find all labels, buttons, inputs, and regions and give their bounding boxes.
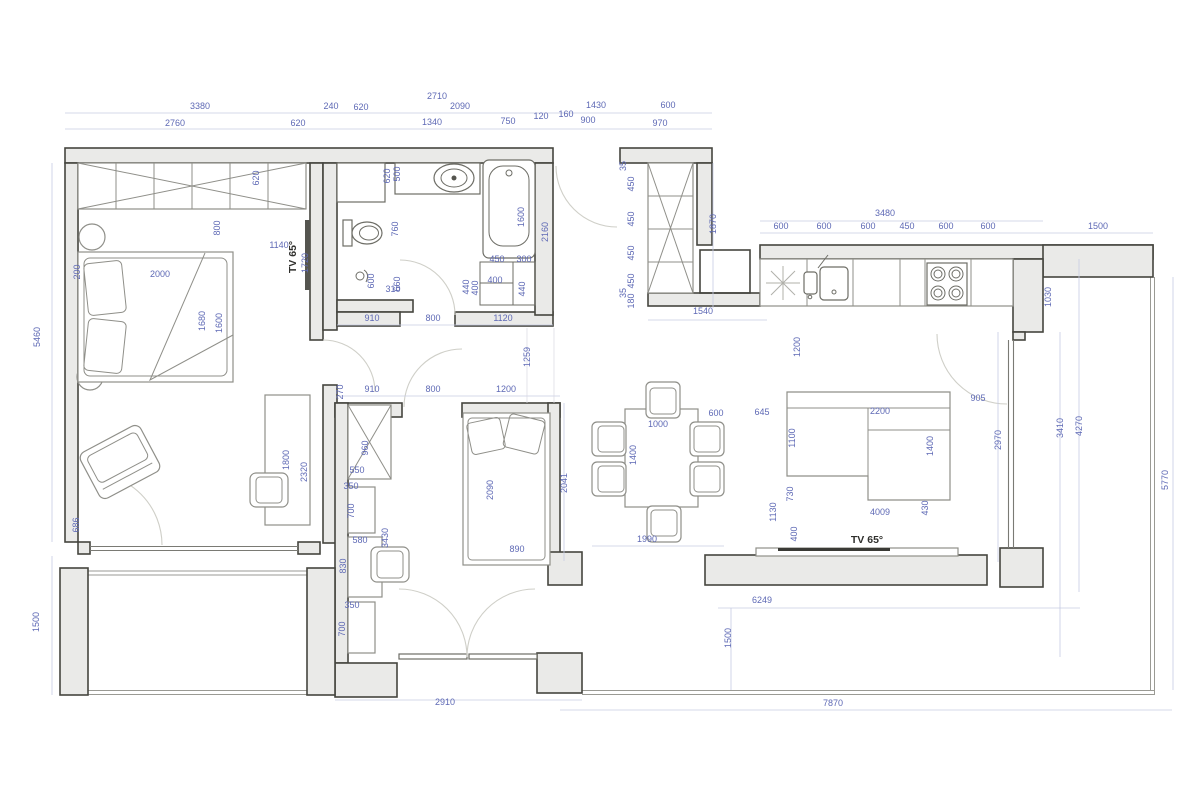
toilet <box>343 220 382 246</box>
dimension-label: 400 <box>789 526 799 541</box>
dimension-label: 2710 <box>427 91 447 101</box>
dimension-label: 600 <box>366 273 376 288</box>
french-door-leaf <box>399 654 467 659</box>
dimension-label: 2160 <box>540 222 550 242</box>
dimension-label: 1340 <box>422 117 442 127</box>
dimension-label: 450 <box>626 211 636 226</box>
dimension-label: 830 <box>338 558 348 573</box>
tv-label: TV 65° <box>287 241 299 273</box>
dimension-label: 300 <box>516 254 531 264</box>
dimension-label: 800 <box>425 313 440 323</box>
dimension-label: 400 <box>487 275 502 285</box>
dimension-label: 550 <box>349 465 364 475</box>
bedroom-desk-chair <box>250 473 288 507</box>
dimension-label: 350 <box>343 481 358 491</box>
middle-room-door-arc <box>404 349 462 407</box>
entry-closet <box>648 163 693 293</box>
dimension-label: 1400 <box>925 436 935 456</box>
entry-door-arc <box>556 166 617 227</box>
dimension-label: 450 <box>626 176 636 191</box>
dimension-label: 1130 <box>768 502 778 521</box>
tv-console <box>756 548 958 556</box>
dimension-label: 1990 <box>637 534 657 544</box>
dimension-label: 800 <box>212 220 222 235</box>
dimension-label: 620 <box>290 118 305 128</box>
dimension-label: 580 <box>352 535 367 545</box>
dimension-label: 450 <box>626 273 636 288</box>
dimension-label: 760 <box>390 221 400 236</box>
middle-bed <box>463 413 550 565</box>
dimension-label: 600 <box>773 221 788 231</box>
dimension-label: 970 <box>652 118 667 128</box>
dimension-label: 450 <box>489 254 504 264</box>
dimension-label: 1540 <box>693 306 713 316</box>
dimension-label: 35 <box>618 161 628 171</box>
dimension-label: 750 <box>500 116 515 126</box>
shaft <box>700 250 750 293</box>
dimension-label: 1120 <box>493 313 512 323</box>
dimension-label: 2970 <box>993 430 1003 450</box>
dimension-label: 600 <box>660 100 675 110</box>
dimension-label: 4270 <box>1074 416 1084 436</box>
dimension-label: 270 <box>335 384 345 399</box>
dimension-label: 2090 <box>450 101 470 111</box>
dimension-label: 905 <box>970 393 985 403</box>
dimension-label: 1259 <box>522 347 532 367</box>
corner-cabinet-symbol <box>766 266 800 300</box>
french-door-arc-left <box>399 589 467 657</box>
dimension-label: 1600 <box>516 207 526 227</box>
dimension-label: 1800 <box>281 450 291 470</box>
dimension-label: 1680 <box>197 311 207 331</box>
tv-label: TV 65° <box>851 534 883 546</box>
dimension-label: 400 <box>470 280 480 295</box>
dimension-label: 1720 <box>300 253 310 273</box>
dimension-label: 6249 <box>752 595 772 605</box>
dimension-label: 4009 <box>870 507 890 517</box>
dimension-label: 1200 <box>496 384 516 394</box>
dimension-label: 500 <box>392 166 402 181</box>
dimension-label: 1500 <box>31 612 41 632</box>
dimension-label: 2760 <box>165 118 185 128</box>
washing-machine <box>337 163 385 202</box>
bedroom-wardrobe <box>78 163 306 209</box>
dimension-label: 440 <box>517 281 527 296</box>
dimension-label: 7870 <box>823 698 843 708</box>
dimension-label: 160 <box>558 109 573 119</box>
dimension-label: 686 <box>71 517 81 532</box>
dimension-label: 180 <box>626 293 636 308</box>
dimension-label: 2910 <box>435 697 455 707</box>
dimension-label: 1400 <box>628 445 638 465</box>
dimension-label: 310 <box>385 284 400 294</box>
dimension-label: 960 <box>360 440 370 455</box>
dimension-label: 450 <box>626 245 636 260</box>
floor-plan-page: 3380276062024062027102090134075012016014… <box>0 0 1200 788</box>
bathtub <box>483 160 535 258</box>
dimension-label: 350 <box>344 600 359 610</box>
dimension-label: 600 <box>816 221 831 231</box>
dimension-label: 3480 <box>875 208 895 218</box>
dimension-label: 645 <box>754 407 769 417</box>
dimension-label: 120 <box>533 111 548 121</box>
dimension-label: 3380 <box>190 101 210 111</box>
dimension-label: 1500 <box>723 628 733 648</box>
dimension-label: 1140 <box>269 240 288 250</box>
middle-desk-chair <box>371 547 409 582</box>
dimension-label: 620 <box>382 168 392 183</box>
dimension-label: 1030 <box>1043 287 1053 307</box>
french-door-leaf <box>469 654 537 659</box>
floor-plan-canvas: 3380276062024062027102090134075012016014… <box>0 0 1200 788</box>
vanity-sink <box>395 163 480 194</box>
dimension-label: 700 <box>337 621 347 636</box>
dimension-label: 1430 <box>586 100 606 110</box>
dimension-label: 240 <box>323 101 338 111</box>
dimension-label: 910 <box>364 384 379 394</box>
dimension-label: 2090 <box>485 480 495 500</box>
dimension-label: 1600 <box>214 313 224 333</box>
dimension-label: 890 <box>509 544 524 554</box>
dimension-label: 2200 <box>870 406 890 416</box>
dimension-label: 1200 <box>792 337 802 357</box>
dimension-label: 200 <box>72 264 82 279</box>
dimension-label: 1500 <box>1088 221 1108 231</box>
dimension-label: 600 <box>980 221 995 231</box>
dimension-label: 3430 <box>380 528 390 548</box>
dimension-label: 700 <box>346 503 356 518</box>
nightstand <box>79 224 105 250</box>
dimension-label: 600 <box>938 221 953 231</box>
bedroom-armchair <box>78 423 162 501</box>
dimension-label: 800 <box>425 384 440 394</box>
dimension-label: 2320 <box>299 462 309 482</box>
dimension-label: 1100 <box>787 428 797 447</box>
dimension-label: 2000 <box>150 269 170 279</box>
dimension-label: 430 <box>920 500 930 515</box>
dimension-label: 1870 <box>708 214 718 234</box>
dimension-label: 910 <box>364 313 379 323</box>
dimension-label: 730 <box>785 486 795 501</box>
stove <box>927 263 967 305</box>
dimension-label: 900 <box>580 115 595 125</box>
dimension-label: 450 <box>899 221 914 231</box>
dimension-label: 1000 <box>648 419 668 429</box>
dimension-label: 620 <box>353 102 368 112</box>
dimension-label: 2041 <box>559 473 569 493</box>
dimension-label: 3410 <box>1055 418 1065 438</box>
dimension-label: 600 <box>708 408 723 418</box>
dimension-label: 600 <box>860 221 875 231</box>
dimension-label: 620 <box>251 170 261 185</box>
french-door-arc-right <box>467 589 535 657</box>
dimension-label: 5460 <box>32 327 42 347</box>
dimension-label: 5770 <box>1160 470 1170 490</box>
